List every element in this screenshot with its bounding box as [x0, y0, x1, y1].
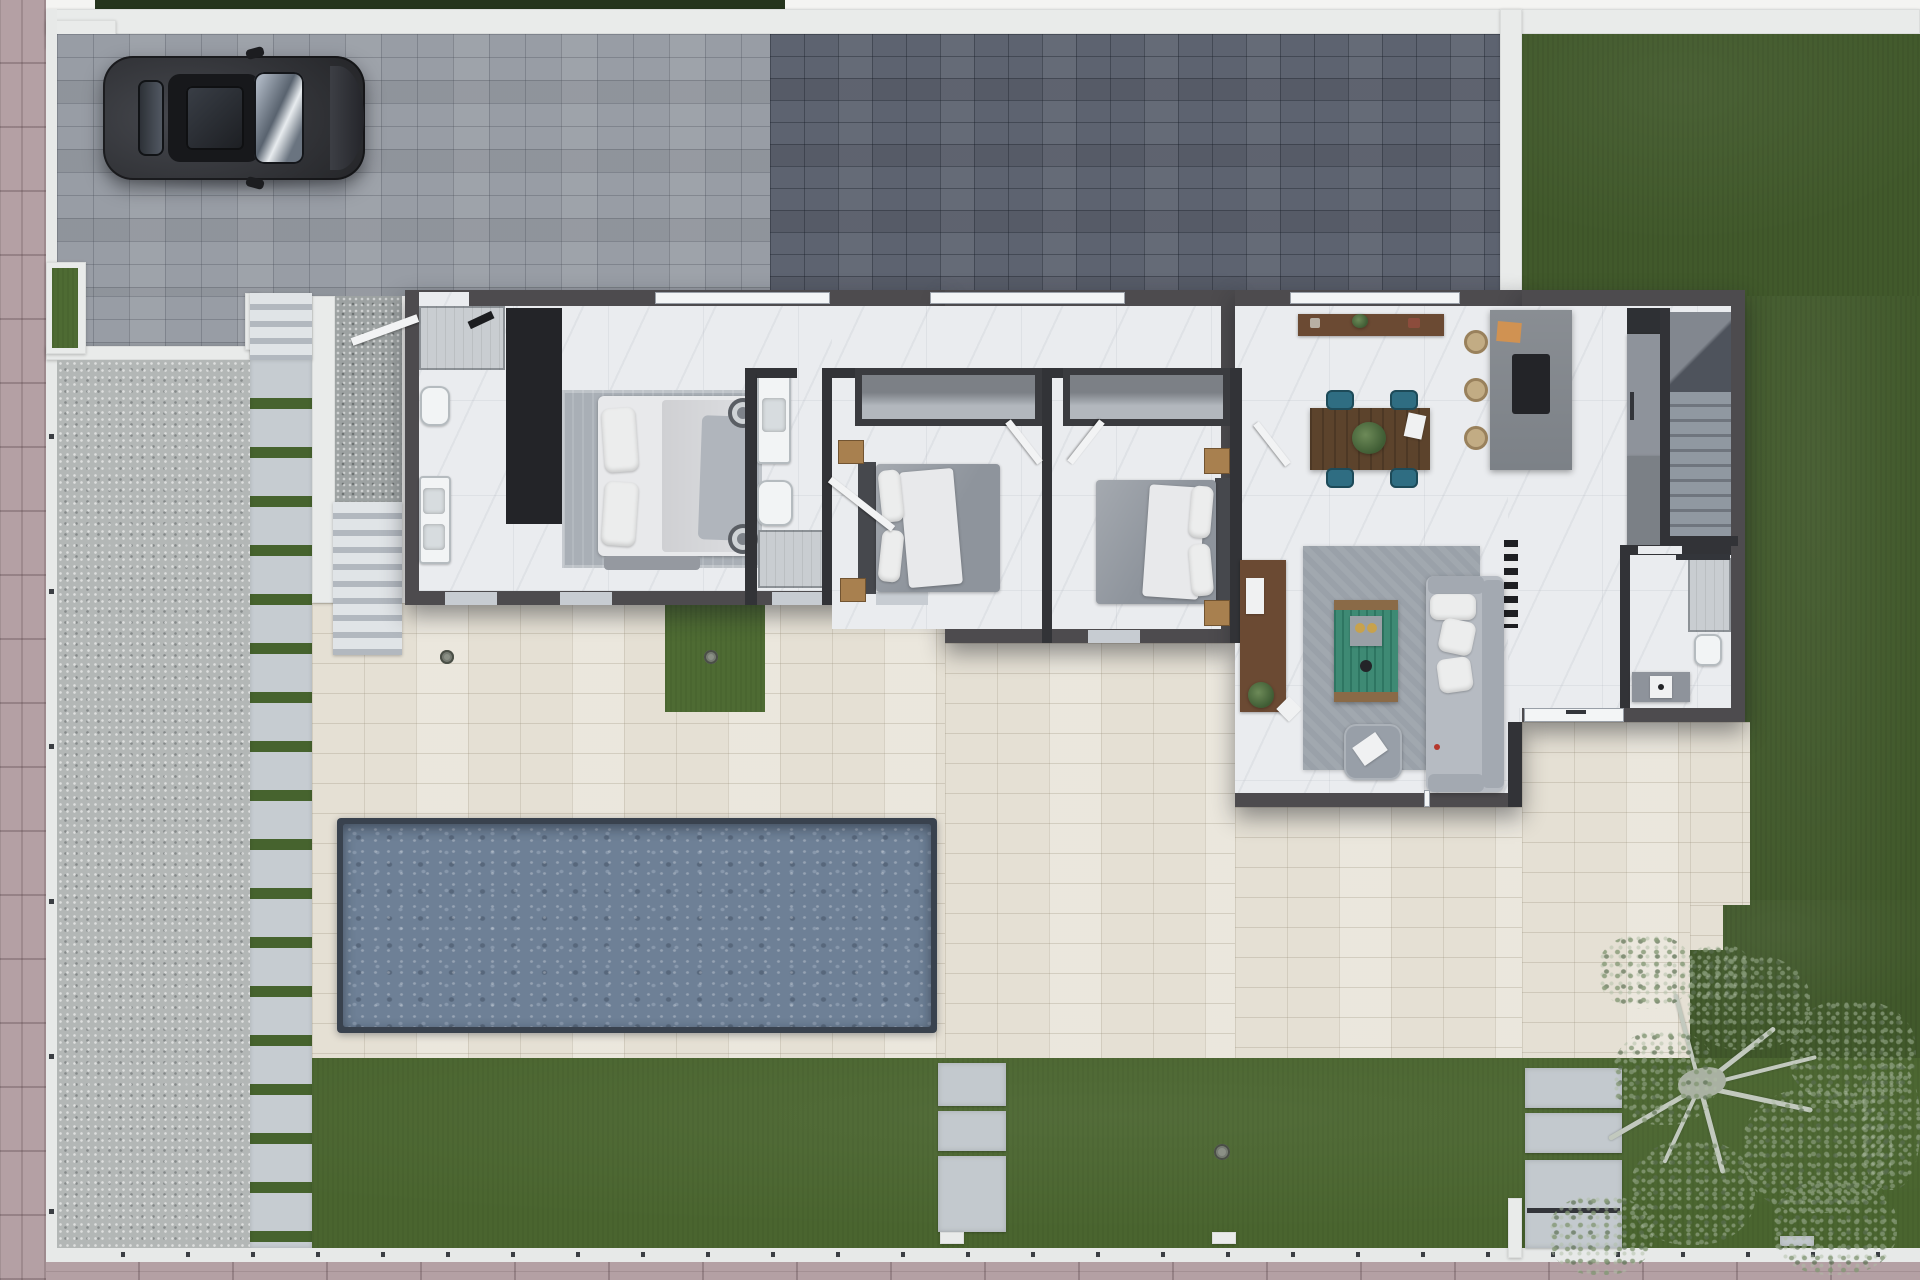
- tree-foliage-8: [1548, 1195, 1653, 1275]
- wall-bath2-bed2: [822, 368, 832, 605]
- tree-foliage-4: [1612, 1030, 1717, 1125]
- tree-foliage-9: [1860, 1060, 1920, 1190]
- entry-steps: [333, 502, 402, 655]
- path-wall-strip: [312, 296, 335, 603]
- entry-gap: [419, 292, 469, 306]
- dining-chair-1: [1326, 390, 1354, 410]
- sofa-arm-bottom: [1428, 774, 1484, 792]
- dining-chair-2: [1390, 390, 1418, 410]
- car-sunroof: [186, 86, 244, 150]
- terrace-mid: [945, 643, 1235, 1058]
- master-bench: [604, 556, 700, 570]
- dark-paving-court: [770, 34, 1500, 296]
- coffee-table-bowl: [1360, 660, 1372, 672]
- bath2-shower: [758, 530, 830, 588]
- bath-door-gap: [1638, 546, 1682, 554]
- bar-stool-3: [1464, 426, 1488, 450]
- sofa-pillow-1: [1437, 617, 1477, 657]
- street-sidewalk-bottom: [46, 1262, 1920, 1280]
- guest-shower: [1688, 558, 1731, 632]
- side-path-stone-2: [1525, 1113, 1622, 1153]
- street-sidewalk-left: [0, 0, 46, 1280]
- bed2-nightstand-1: [838, 440, 864, 464]
- bed3-closet: [1063, 368, 1230, 426]
- window-2: [930, 292, 1125, 304]
- sofa-arm-top: [1428, 576, 1484, 594]
- living-right-wall: [1508, 722, 1522, 807]
- pool-water: [343, 824, 931, 1027]
- bed3-nightstand-1: [1204, 448, 1230, 474]
- garden-path-stone-2: [938, 1111, 1006, 1151]
- stair-landing: [1670, 312, 1731, 392]
- terrace-right-upper: [1690, 722, 1750, 905]
- sofa-pillow-2: [1436, 656, 1474, 694]
- front-path: [250, 360, 312, 1248]
- tray-gold-1: [1355, 623, 1365, 633]
- bath2-sink: [762, 398, 786, 432]
- living-door-handle: [1424, 790, 1430, 807]
- master-pillow-1: [601, 407, 639, 473]
- bed3-nightstand-2: [1204, 600, 1230, 626]
- dining-chair-4: [1390, 468, 1418, 488]
- console-books: [1246, 578, 1264, 614]
- master-toilet: [420, 386, 450, 426]
- ladder-decor: [1504, 540, 1518, 628]
- staircase: [1670, 392, 1731, 540]
- side-gate-post: [1508, 1198, 1522, 1258]
- sofa-headrest: [1430, 594, 1476, 620]
- stair-wall-left: [1660, 308, 1670, 544]
- tree-foliage-7: [1772, 1180, 1897, 1275]
- side-wall-right: [1500, 9, 1522, 296]
- curb-left: [46, 9, 57, 1262]
- tray-gold-2: [1367, 623, 1377, 633]
- tree-foliage-1: [1598, 934, 1693, 1009]
- car-windshield: [254, 72, 304, 164]
- side-path-stone-1: [1525, 1068, 1622, 1108]
- console-plant: [1248, 682, 1274, 708]
- garden-light-b: [1212, 1232, 1236, 1244]
- bed3-pillow-1: [1188, 485, 1214, 539]
- terrace-drain: [440, 650, 454, 664]
- window-3: [1290, 292, 1460, 304]
- hedge-top: [95, 0, 785, 9]
- wall-hall-bed2: [832, 368, 855, 378]
- garden-path-stone-3: [938, 1156, 1006, 1232]
- bar-stool-1: [1464, 330, 1488, 354]
- master-throw: [698, 415, 750, 541]
- lawn-top-right: [1522, 34, 1920, 296]
- master-sink-1: [423, 488, 445, 514]
- terrace-right: [1522, 722, 1690, 1058]
- bed2-closet: [855, 368, 1042, 426]
- dining-chair-3: [1326, 468, 1354, 488]
- sofa-back: [1482, 580, 1504, 788]
- car-rear-glass: [138, 80, 164, 156]
- coffee-table-tray: [1350, 616, 1382, 646]
- wall-hall-bed3: [1052, 368, 1063, 378]
- slider-door-4: [876, 592, 928, 605]
- dining-plant: [1352, 422, 1386, 454]
- slider-door-2: [560, 592, 612, 605]
- wall-master-bath2: [745, 368, 757, 605]
- garden-path-stone-1: [938, 1063, 1006, 1106]
- terrace-door-handle: [1566, 710, 1586, 714]
- guest-toilet: [1694, 634, 1722, 666]
- bed2-throw: [899, 468, 963, 588]
- patio-drain: [704, 650, 718, 664]
- bed2-nightstand-2: [840, 578, 866, 602]
- wall-hall-bath2: [757, 368, 797, 378]
- lawn-drain: [1214, 1144, 1230, 1160]
- terrace-living-front: [1235, 807, 1522, 1058]
- island-cooktop: [1512, 354, 1550, 414]
- villa-floor-plan-rendering: [0, 0, 1920, 1280]
- window-1: [655, 292, 830, 304]
- master-wardrobe: [506, 308, 562, 524]
- candle: [1434, 744, 1440, 750]
- slider-door-1: [445, 592, 497, 605]
- slider-door-5: [1088, 630, 1140, 643]
- boundary-wall-top: [46, 9, 1920, 34]
- planter-grass: [52, 268, 78, 348]
- island-cutting-board: [1496, 321, 1522, 343]
- garden-light-a: [940, 1232, 964, 1244]
- bath-wall-left: [1620, 545, 1630, 708]
- sideboard-deco-1: [1310, 318, 1320, 328]
- wall-bed2-bed3: [1042, 368, 1052, 643]
- bed3-pillow-2: [1188, 543, 1214, 597]
- counter-handle: [1630, 392, 1634, 420]
- slider-door-3: [772, 592, 824, 605]
- tree-foliage-10: [1686, 944, 1752, 1000]
- bar-stool-2: [1464, 378, 1488, 402]
- bed2-headboard: [858, 462, 876, 594]
- master-sink-2: [423, 524, 445, 550]
- bath2-toilet: [757, 480, 793, 526]
- master-pillow-2: [601, 481, 639, 547]
- gravel-front-yard: [57, 360, 250, 1248]
- towel-bar: [1676, 554, 1730, 560]
- front-path-steps: [250, 293, 312, 360]
- guest-sink-drain: [1658, 684, 1664, 690]
- sideboard-plant: [1352, 314, 1368, 328]
- sideboard-deco-2: [1408, 318, 1420, 328]
